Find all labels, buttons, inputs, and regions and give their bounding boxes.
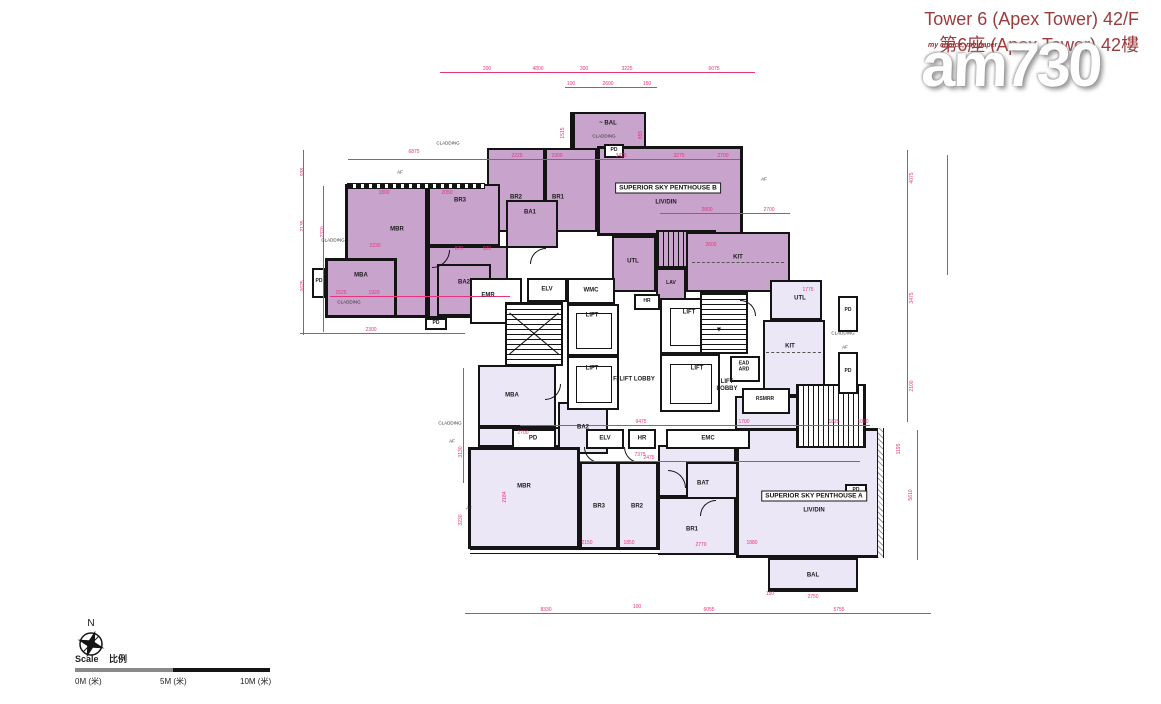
dimension-line <box>303 150 304 335</box>
floor-plan-page: Tower 6 (Apex Tower) 42/F 第6座 (Apex Towe… <box>0 0 1161 704</box>
am730-tagline: my choice, my paper <box>928 42 997 49</box>
dimension-line <box>440 72 755 73</box>
room-core-lift-bl <box>567 356 619 410</box>
label-pd-left-2: PD <box>433 321 440 327</box>
dimension-label: 1825 <box>828 419 839 425</box>
dimension-label: 2700 <box>717 153 728 159</box>
label-b-br3: BR3 <box>454 198 466 205</box>
label-core-lift-tl: LIFT <box>586 313 599 320</box>
dimension-label: 2320 <box>320 226 326 237</box>
dimension-label: 1525 <box>335 290 346 296</box>
label-pd-right-3: PD <box>853 488 860 494</box>
annotation-label: CLADDING <box>831 331 854 336</box>
label-core-lift-br: LIFT <box>691 366 704 373</box>
dimension-label: 150 <box>643 81 651 87</box>
dimension-label: 2225 <box>511 153 522 159</box>
dimension-label: 5755 <box>833 607 844 613</box>
dimension-label: 6075 <box>708 66 719 72</box>
dimension-label: 3230 <box>458 514 464 525</box>
label-pd-right-2: PD <box>845 369 852 375</box>
scale-bar-segment-5-10 <box>173 668 270 672</box>
dimension-label: 2300 <box>365 327 376 333</box>
label-core-elv-bottom: ELV <box>599 436 610 443</box>
scale-tick-5: 5M (米) <box>160 676 187 687</box>
label-a-mbr: MBR <box>517 484 531 491</box>
dimension-label: 2800 <box>701 207 712 213</box>
page-title: Tower 6 (Apex Tower) 42/F <box>924 9 1139 30</box>
cladding-wall-right <box>877 428 884 558</box>
dimension-label: 2770 <box>695 542 706 548</box>
label-core-rsmrr: RSMRR <box>756 397 774 403</box>
label-b-mba: MBA <box>354 273 368 280</box>
label-b-utl: UTL <box>627 259 639 266</box>
dimension-line <box>947 155 948 275</box>
dimension-line <box>323 186 324 332</box>
cladding-wall-top <box>347 183 485 189</box>
dimension-label: 2230 <box>369 243 380 249</box>
scale-label-en: Scale <box>75 654 99 664</box>
dimension-label: 300 <box>580 66 588 72</box>
dimension-label: 3225 <box>621 66 632 72</box>
dimension-label: 855 <box>638 131 644 139</box>
dimension-label: 2600 <box>602 81 613 87</box>
dimension-label: 2100 <box>909 380 915 391</box>
dimension-label: 2700 <box>517 430 528 436</box>
label-b-lav: LAV <box>666 281 676 287</box>
label-a-br3: BR3 <box>593 504 605 511</box>
scale-label: Scale 比例 <box>75 652 127 665</box>
label-core-elv-top: ELV <box>541 287 552 294</box>
dimension-label: 1800 <box>378 190 389 196</box>
dimension-label: 1920 <box>368 290 379 296</box>
label-core-f-lift-lobby: F. LIFT LOBBY <box>613 377 655 384</box>
dimension-line <box>300 333 465 334</box>
dimension-label: 3425 <box>615 153 626 159</box>
label-pd-right-1: PD <box>845 308 852 314</box>
dimension-line <box>465 613 931 614</box>
label-core-hr-top: HR <box>643 299 650 305</box>
dimension-label: 100 <box>567 81 575 87</box>
scale-tick-10: 10M (米) <box>240 676 271 687</box>
annotation-label: CLADDING <box>438 421 461 426</box>
dimension-label: 7375 <box>634 452 645 458</box>
label-core-lift-bl: LIFT <box>586 366 599 373</box>
dimension-label: 200 <box>483 66 491 72</box>
scale-bar-segment-0-5 <box>75 668 173 672</box>
dimension-label: 1775 <box>802 287 813 293</box>
label-a-livdin: LIV/DIN <box>803 508 824 515</box>
dimension-label: 3130 <box>458 446 464 457</box>
dimension-label: 4800 <box>532 66 543 72</box>
kitchen-counter-a <box>766 352 821 353</box>
annotation-label: AF <box>842 345 848 350</box>
label-a-utl: UTL <box>794 296 806 303</box>
scale-tick-0: 0M (米) <box>75 676 102 687</box>
label-core-hr-bottom: HR <box>638 436 647 443</box>
label-b-ba2: BA2 <box>458 280 470 287</box>
window-line-a <box>470 549 660 554</box>
dimension-label: 2135 <box>300 220 306 231</box>
room-b-mba <box>325 258 397 318</box>
annotation-label: AF <box>449 439 455 444</box>
dimension-line <box>580 461 860 462</box>
dimension-label: 4075 <box>909 172 915 183</box>
dimension-label: 870 <box>455 246 463 252</box>
dimension-label: 1080 <box>857 419 868 425</box>
label-core-wmc: WMC <box>584 288 599 295</box>
label-core-lift-lobby: LIFT LOBBY <box>714 379 740 393</box>
dimension-label: 2625 <box>300 280 306 291</box>
annotation-label: CLADDING <box>321 238 344 243</box>
annotation-label: AF <box>397 170 403 175</box>
label-a-mba: MBA <box>505 393 519 400</box>
dimension-label: 150 <box>766 591 774 597</box>
label-core-pd-bottom: PD <box>529 436 537 443</box>
annotation-label: AF <box>761 177 767 182</box>
compass-north-letter: N <box>87 618 94 629</box>
kitchen-counter-b <box>692 262 784 263</box>
room-core-lift-br <box>660 354 720 412</box>
annotation-label: CLADDING <box>436 141 459 146</box>
dimension-label: 6875 <box>408 149 419 155</box>
label-penthouse-b-name: SUPERIOR SKY PENTHOUSE B <box>615 183 721 194</box>
dimension-label: 100 <box>633 604 641 610</box>
dimension-label: 2150 <box>581 540 592 546</box>
annotation-label: AF <box>466 506 472 511</box>
dimension-line <box>565 87 657 88</box>
dimension-label: 920 <box>483 246 491 252</box>
dimension-label: 1195 <box>896 444 902 455</box>
dimension-label: 938 <box>300 168 306 176</box>
label-pd-left-1: PD <box>316 279 323 285</box>
room-pd-right-1 <box>838 296 858 332</box>
dimension-label: 1700 <box>738 419 749 425</box>
dimension-line <box>660 213 790 214</box>
label-b-kit: KIT <box>733 255 743 262</box>
dimension-line <box>520 425 870 426</box>
dimension-line <box>907 150 908 422</box>
label-b-mbr: MBR <box>390 227 404 234</box>
label-b-br2: BR2 <box>510 195 522 202</box>
label-a-br2: BR2 <box>631 504 643 511</box>
dimension-line <box>463 368 464 483</box>
dimension-label: 8330 <box>540 607 551 613</box>
dimension-label: 2300 <box>551 153 562 159</box>
dimension-line <box>917 430 918 560</box>
label-b-livdin: LIV/DIN <box>655 200 676 207</box>
room-a-mbr <box>468 447 580 549</box>
dimension-label: 1850 <box>623 540 634 546</box>
dimension-label: 2600 <box>705 242 716 248</box>
room-b-br3 <box>428 184 500 246</box>
door-arc <box>530 248 546 264</box>
annotation-label: CLADDING <box>337 300 360 305</box>
am730-watermark-logo: am730 <box>897 30 1124 101</box>
dimension-label: 9475 <box>635 419 646 425</box>
label-core-emc: EMC <box>701 436 714 443</box>
dimension-label: 5610 <box>908 489 914 500</box>
label-a-bat: BAT <box>697 481 709 488</box>
label-b-br1: BR1 <box>552 195 564 202</box>
dimension-label: 2184 <box>502 491 508 502</box>
dimension-line <box>348 159 740 160</box>
stair-direction-arrow: ▼ <box>716 327 723 334</box>
label-a-balcony: BAL <box>807 573 819 580</box>
door-arc <box>545 384 561 400</box>
scale-label-zh: 比例 <box>109 654 127 664</box>
label-b-ba1: BA1 <box>524 210 536 217</box>
dimension-label: 2700 <box>763 207 774 213</box>
label-core-emr: EMR <box>481 293 494 300</box>
annotation-label: CLADDING <box>592 134 615 139</box>
label-core-lift-tr: LIFT <box>683 310 696 317</box>
dimension-label: 1515 <box>560 127 566 138</box>
label-penthouse-a-name: SUPERIOR SKY PENTHOUSE A <box>761 491 867 502</box>
dimension-label: 2750 <box>807 594 818 600</box>
door-arc <box>740 300 756 316</box>
label-a-br1: BR1 <box>686 527 698 534</box>
dimension-label: 6055 <box>703 607 714 613</box>
dimension-label: 3475 <box>909 292 915 303</box>
label-core-ead-ard: EAD ARD <box>734 361 754 373</box>
label-a-ba2: BA2 <box>577 425 589 432</box>
dimension-label: 1880 <box>746 540 757 546</box>
label-b-balcony: ~ BAL <box>599 121 617 128</box>
label-a-kit: KIT <box>785 344 795 351</box>
dimension-label: 2050 <box>441 190 452 196</box>
dimension-label: 3275 <box>673 153 684 159</box>
room-b-ba1 <box>506 200 558 248</box>
